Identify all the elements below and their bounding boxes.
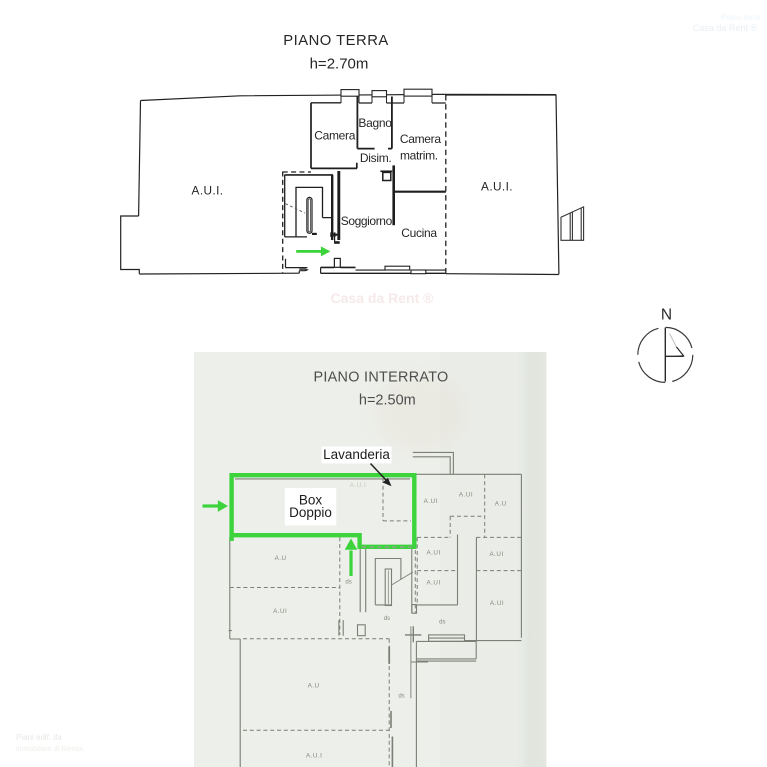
svg-text:Camera: Camera (400, 132, 442, 146)
svg-text:Casa da Rent ®: Casa da Rent ® (331, 290, 435, 306)
svg-text:h=2.70m: h=2.70m (310, 56, 369, 73)
svg-text:A.U: A.U (308, 682, 320, 689)
svg-text:A.UI: A.UI (489, 551, 503, 558)
svg-text:h=2.50m: h=2.50m (359, 393, 416, 409)
svg-text:PIANO TERRA: PIANO TERRA (283, 33, 389, 49)
svg-text:immobiliare di Rienza: immobiliare di Rienza (16, 746, 83, 753)
svg-text:matrim.: matrim. (400, 149, 438, 163)
svg-text:Disim.: Disim. (360, 151, 392, 165)
svg-text:Bagno: Bagno (358, 116, 392, 130)
svg-text:A.U: A.U (275, 555, 287, 562)
svg-text:A.U: A.U (495, 501, 507, 508)
svg-text:Doppio: Doppio (289, 505, 332, 520)
svg-text:A.U.I.: A.U.I. (192, 184, 224, 198)
svg-text:A.U.I.: A.U.I. (481, 180, 513, 194)
svg-text:Cucina: Cucina (401, 226, 437, 240)
svg-text:Camera: Camera (314, 129, 356, 143)
svg-text:Casa da Rent ®: Casa da Rent ® (693, 23, 758, 33)
svg-text:A.U.I: A.U.I (350, 482, 367, 489)
svg-text:ds: ds (398, 694, 404, 700)
svg-text:ds: ds (384, 616, 390, 622)
svg-text:A.UI: A.UI (490, 600, 504, 607)
svg-text:Piano terra: Piano terra (721, 13, 761, 22)
svg-text:A.UI: A.UI (426, 580, 440, 587)
svg-text:ds: ds (345, 580, 351, 586)
svg-text:A.UI: A.UI (426, 550, 440, 557)
svg-text:Lavanderia: Lavanderia (323, 447, 390, 462)
svg-text:A.UI: A.UI (273, 608, 287, 615)
svg-text:N: N (661, 307, 672, 324)
svg-text:Piani edif. ifa: Piani edif. ifa (16, 733, 62, 742)
svg-text:PIANO INTERRATO: PIANO INTERRATO (313, 370, 448, 386)
svg-text:A.U.I: A.U.I (306, 753, 323, 760)
svg-text:A.UI: A.UI (424, 498, 438, 505)
svg-text:A.UI: A.UI (459, 492, 473, 499)
svg-text:ds: ds (439, 619, 445, 625)
svg-text:Soggiorno: Soggiorno (341, 214, 393, 228)
